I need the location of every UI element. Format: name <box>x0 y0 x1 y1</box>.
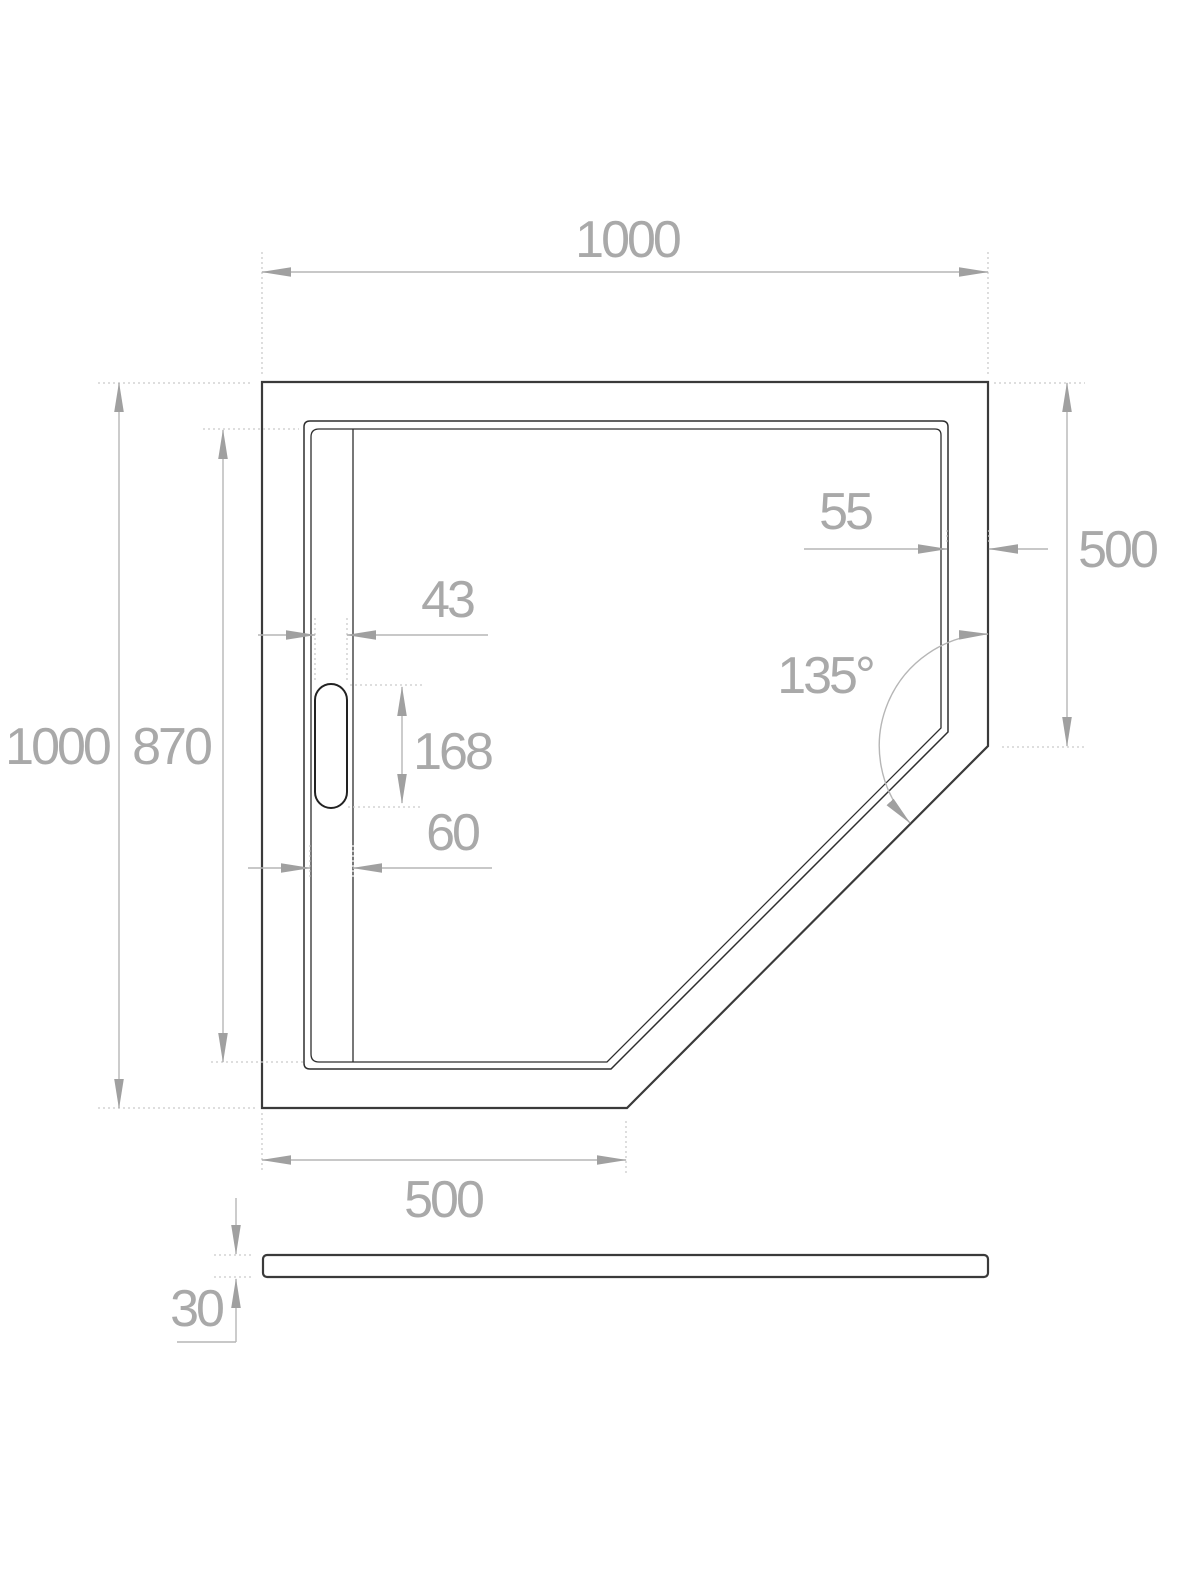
dim-label-top-width: 1000 <box>575 211 680 269</box>
dim-label-drain-channel-width: 60 <box>426 804 479 862</box>
dim-label-right-rim-width: 55 <box>819 483 872 541</box>
drain-cover <box>315 684 347 808</box>
dim-label-corner-angle: 135° <box>777 647 873 705</box>
shower-tray-technical-drawing: 1000 1000 870 43 168 60 55 500 135° 500 <box>0 0 1194 1592</box>
dimension-inner-depth: 870 <box>132 430 223 1062</box>
dimension-top-width: 1000 <box>262 211 988 272</box>
drawing-canvas: 1000 1000 870 43 168 60 55 500 135° 500 <box>0 0 1194 1592</box>
side-view <box>263 1255 988 1277</box>
dimension-thickness: 30 <box>170 1198 236 1342</box>
dim-label-drain-cover-length: 168 <box>413 723 492 781</box>
dim-label-inner-depth: 870 <box>132 718 211 776</box>
dim-label-bottom-side-length: 500 <box>404 1171 483 1229</box>
dim-label-right-side-length: 500 <box>1078 521 1157 579</box>
tray-side-profile <box>263 1255 988 1277</box>
dim-label-thickness: 30 <box>170 1280 223 1338</box>
dimension-bottom-side-length: 500 <box>262 1160 626 1229</box>
dimension-left-depth: 1000 <box>5 383 119 1108</box>
dim-label-drain-cover-width: 43 <box>421 571 474 629</box>
dim-label-left-depth: 1000 <box>5 718 110 776</box>
dimension-right-side-length: 500 <box>1067 383 1157 746</box>
